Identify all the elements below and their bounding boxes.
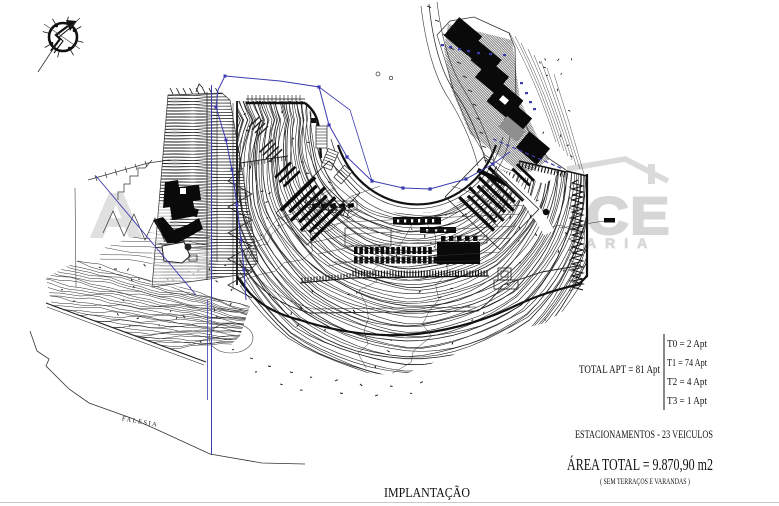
svg-text:( SEM TERRAÇOS E VARANDAS ): ( SEM TERRAÇOS E VARANDAS )	[600, 477, 690, 486]
svg-text:TOTAL APT = 81 Apt: TOTAL APT = 81 Apt	[579, 364, 661, 376]
svg-text:T2 = 4 Apt: T2 = 4 Apt	[667, 376, 707, 388]
svg-text:ARIA: ARIA	[586, 235, 656, 251]
svg-text:ÁREA TOTAL = 9.870,90 m2: ÁREA TOTAL = 9.870,90 m2	[567, 455, 713, 474]
svg-text:T3 = 1 Apt: T3 = 1 Apt	[667, 395, 707, 407]
svg-text:T1 = 74 Apt: T1 = 74 Apt	[667, 357, 707, 369]
svg-text:A: A	[90, 182, 143, 251]
svg-text:T0 = 2 Apt: T0 = 2 Apt	[667, 338, 707, 350]
svg-text:IMPLANTAÇÃO: IMPLANTAÇÃO	[384, 485, 470, 501]
svg-text:ESTACIONAMENTOS - 23 VEICULO: ESTACIONAMENTOS - 23 VEICULOS	[575, 429, 713, 441]
